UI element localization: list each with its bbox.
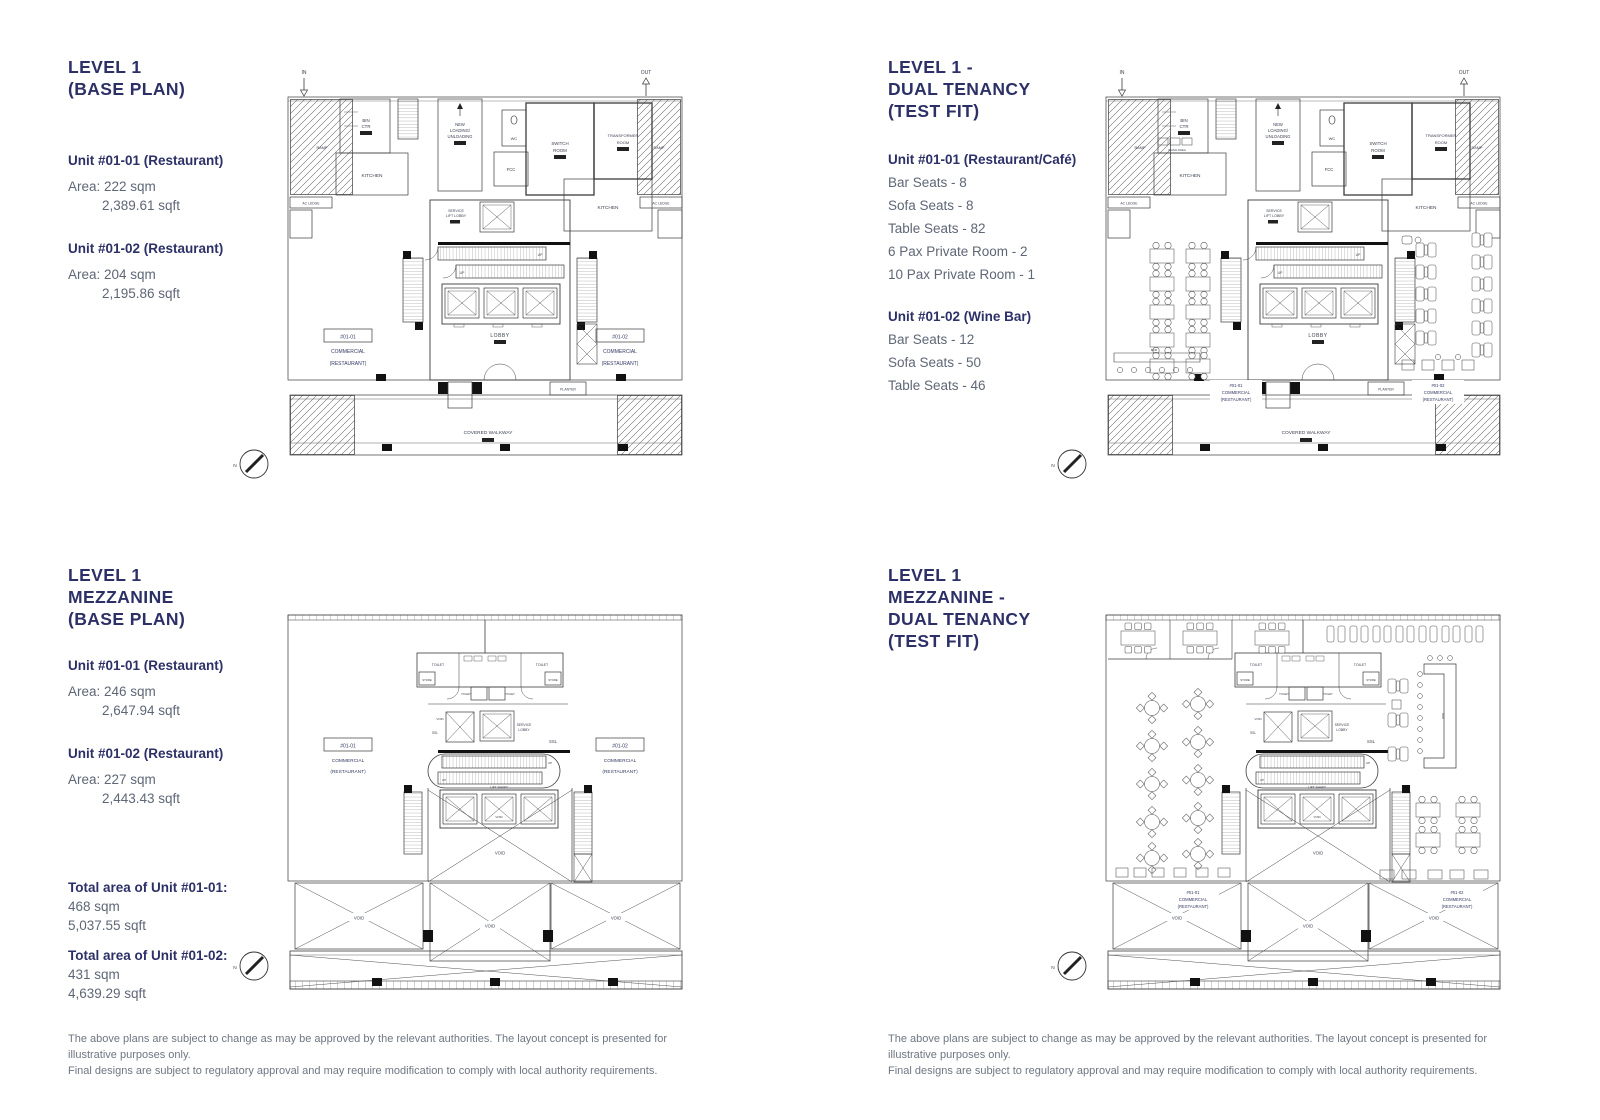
unit1-number-label: #01-01 [1229, 383, 1243, 388]
unit2-restaurant-label: (RESTAURANT) [1442, 904, 1473, 909]
floor-plan-level1-testfit: WASH AREA BAR #01-01 COMMERCIAL (RESTAUR… [1050, 60, 1510, 492]
unit-labels-level1-testfit: #01-01 COMMERCIAL (RESTAURANT) #01-02 CO… [1210, 380, 1464, 404]
unit2-commercial-label: COMMERCIAL [604, 758, 637, 764]
unit1-restaurant-label: (RESTAURANT) [330, 361, 367, 367]
unit1-number-label: #01-01 [340, 335, 356, 341]
testfit-furniture-mezzanine: BAR [1108, 620, 1488, 879]
unit2-number-label: #01-02 [612, 744, 628, 750]
disclaimer-line: Final designs are subject to regulatory … [888, 1063, 1536, 1079]
unit1-commercial-label: COMMERCIAL [1222, 390, 1251, 395]
room-label-bar: BAR [1151, 348, 1158, 352]
unit2-restaurant-label: (RESTAURANT) [1423, 397, 1454, 402]
unit2-number-label: #01-02 [1431, 383, 1445, 388]
floorplan-brochure-page: { "panels": { "level1_base": { "title": … [0, 0, 1600, 1120]
unit1-number-label: #01-01 [1186, 890, 1200, 895]
disclaimer-left: The above plans are subject to change as… [68, 1031, 716, 1079]
unit1-restaurant-label: (RESTAURANT) [330, 769, 366, 775]
unit2-commercial-label: COMMERCIAL [1424, 390, 1453, 395]
title-line: LEVEL 1 [68, 564, 283, 586]
unit-labels-mezz-testfit: #01-01 COMMERCIAL (RESTAURANT) #01-02 CO… [1167, 887, 1483, 910]
unit1-number-label: #01-01 [340, 744, 356, 750]
disclaimer-line: The above plans are subject to change as… [888, 1031, 1536, 1063]
disclaimer-line: Final designs are subject to regulatory … [68, 1063, 716, 1079]
unit1-commercial-label: COMMERCIAL [332, 758, 365, 764]
floor-plan-mezzanine-base: #01-01 COMMERCIAL (RESTAURANT) #01-02 CO… [232, 592, 692, 996]
disclaimer-line: The above plans are subject to change as… [68, 1031, 716, 1063]
floor-plan-mezzanine-testfit: BAR #01-01 COMMERCIAL (RESTAURANT) #01-0… [1050, 592, 1510, 996]
unit-labels-level1-base: #01-01 COMMERCIAL (RESTAURANT) #01-02 CO… [324, 329, 644, 367]
unit1-commercial-label: COMMERCIAL [331, 349, 365, 355]
floor-plan-level1-base: #01-01 COMMERCIAL (RESTAURANT) #01-02 CO… [232, 60, 692, 492]
disclaimer-right: The above plans are subject to change as… [888, 1031, 1536, 1079]
unit2-commercial-label: COMMERCIAL [603, 349, 637, 355]
unit2-restaurant-label: (RESTAURANT) [602, 769, 638, 775]
unit2-number-label: #01-02 [1450, 890, 1464, 895]
unit2-commercial-label: COMMERCIAL [1443, 897, 1472, 902]
unit1-restaurant-label: (RESTAURANT) [1221, 397, 1252, 402]
unit1-commercial-label: COMMERCIAL [1179, 897, 1208, 902]
room-label-wash-area: WASH AREA [1168, 148, 1186, 152]
title-line: LEVEL 1 [888, 564, 1123, 586]
unit1-restaurant-label: (RESTAURANT) [1178, 904, 1209, 909]
unit2-restaurant-label: (RESTAURANT) [602, 361, 639, 367]
unit2-number-label: #01-02 [612, 335, 628, 341]
room-label-bar: BAR [1441, 713, 1445, 719]
